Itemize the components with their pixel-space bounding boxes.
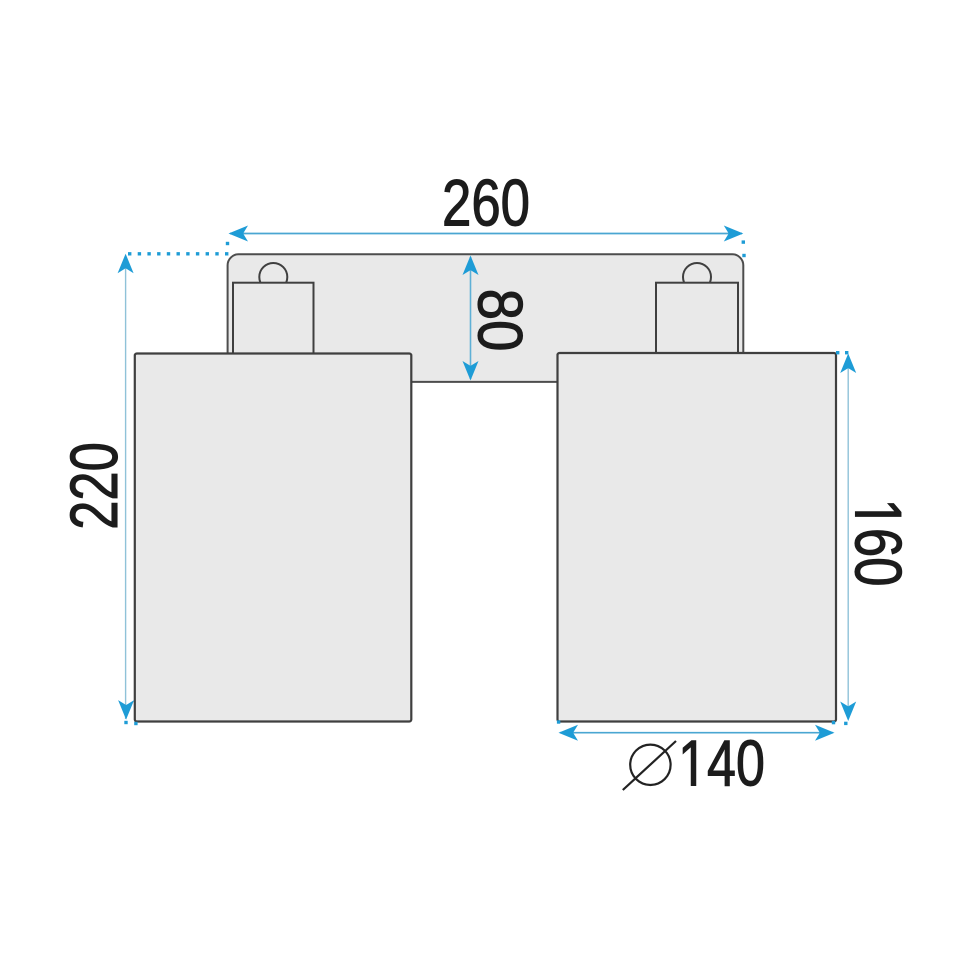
svg-text:80: 80 [465,289,536,352]
svg-text:40: 40 [707,728,765,800]
svg-text:60: 60 [841,528,915,587]
svg-text:260: 260 [442,166,530,240]
svg-text:220: 220 [57,442,131,530]
